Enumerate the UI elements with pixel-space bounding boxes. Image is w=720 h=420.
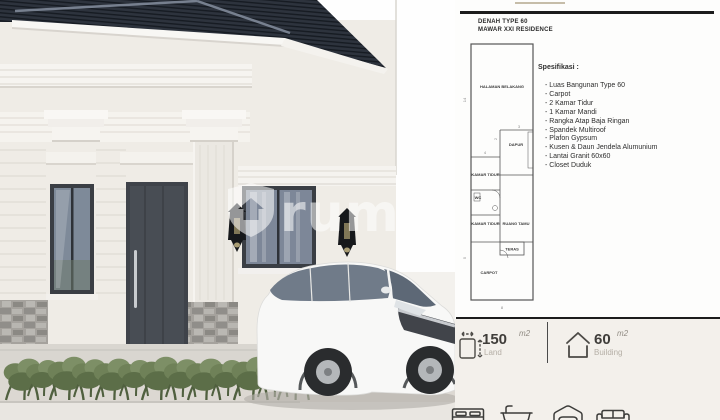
top-tick-line — [515, 2, 565, 4]
listing-flyer: rumah DENAH TYPE 60 MAWAR XXI RESIDENCE — [0, 0, 720, 420]
front-window — [46, 184, 98, 300]
spec-item: - Luas Bangunan Type 60 — [538, 82, 718, 91]
spec-item: - Lantai Granit 60x60 — [538, 153, 718, 162]
land-label: Land — [484, 348, 502, 357]
land-dimension-icon — [458, 330, 484, 362]
door-handle — [134, 250, 137, 308]
spec-item: - Closet Duduk — [538, 162, 718, 171]
spec-item: - Carpot — [538, 91, 718, 100]
top-rule — [460, 11, 714, 14]
porch-pillar — [188, 142, 238, 348]
land-value: 150 — [482, 331, 507, 348]
watermark-text: rumah — [280, 184, 455, 244]
room-wc: WC — [475, 195, 482, 200]
building-unit: m2 — [617, 329, 628, 338]
stone-base-left — [0, 300, 48, 348]
entry-door — [126, 182, 188, 352]
dim-14: 14 — [462, 97, 467, 102]
room-kamar-tidur-1: KAMAR TIDUR — [471, 172, 499, 177]
stone-base — [188, 302, 238, 348]
room-dapur: DAPUR — [509, 142, 523, 147]
floor-plan: HALAMAN BELAKANG DAPUR KAMAR TIDUR WC KA… — [455, 38, 535, 316]
title-line2: MAWAR XXI RESIDENCE — [478, 27, 553, 35]
bathtub-icon — [499, 404, 535, 420]
bed-icon — [451, 404, 487, 420]
spec-item: - 1 Kamar Mandi — [538, 109, 718, 118]
room-ruang-tamu: RUANG TAMU — [502, 221, 529, 226]
page-title: DENAH TYPE 60 MAWAR XXI RESIDENCE — [478, 19, 553, 34]
summary-divider — [547, 322, 548, 363]
specs-list: - Luas Bangunan Type 60 - Carpot - 2 Kam… — [538, 82, 718, 171]
dim-8: 8 — [501, 305, 504, 310]
spec-item: - Plafon Gypsum — [538, 135, 718, 144]
room-teras: TERAS — [505, 247, 519, 252]
summary-strip: 150 m2 Land 60 m2 Building — [455, 319, 720, 420]
car-garage-icon — [551, 404, 587, 420]
room-halaman-belakang: HALAMAN BELAKANG — [480, 84, 524, 89]
house-outline-icon — [563, 330, 593, 360]
room-carpot: CARPOT — [481, 270, 498, 275]
dim-2: 2 — [493, 137, 498, 140]
spec-item: - Spandek Multiroof — [538, 127, 718, 136]
title-line1: DENAH TYPE 60 — [478, 19, 553, 27]
dim-4: 4 — [484, 150, 487, 155]
spec-item: - Kusen & Daun Jendela Alumunium — [538, 144, 718, 153]
specifications: Spesifikasi : - Luas Bangunan Type 60 - … — [538, 64, 718, 171]
sofa-icon — [594, 404, 632, 420]
dim-3: 3 — [518, 124, 521, 129]
dim-5: 5 — [462, 256, 467, 259]
building-value: 60 — [594, 331, 611, 348]
spec-panel: DENAH TYPE 60 MAWAR XXI RESIDENCE — [455, 0, 720, 420]
room-kamar-tidur-2: KAMAR TIDUR — [471, 221, 499, 226]
specs-heading: Spesifikasi : — [538, 64, 718, 71]
spec-item: - Rangka Atap Baja Ringan — [538, 118, 718, 127]
spec-item: - 2 Kamar Tidur — [538, 100, 718, 109]
land-unit: m2 — [519, 329, 530, 338]
building-label: Building — [594, 348, 622, 357]
house-render: rumah — [0, 0, 455, 420]
